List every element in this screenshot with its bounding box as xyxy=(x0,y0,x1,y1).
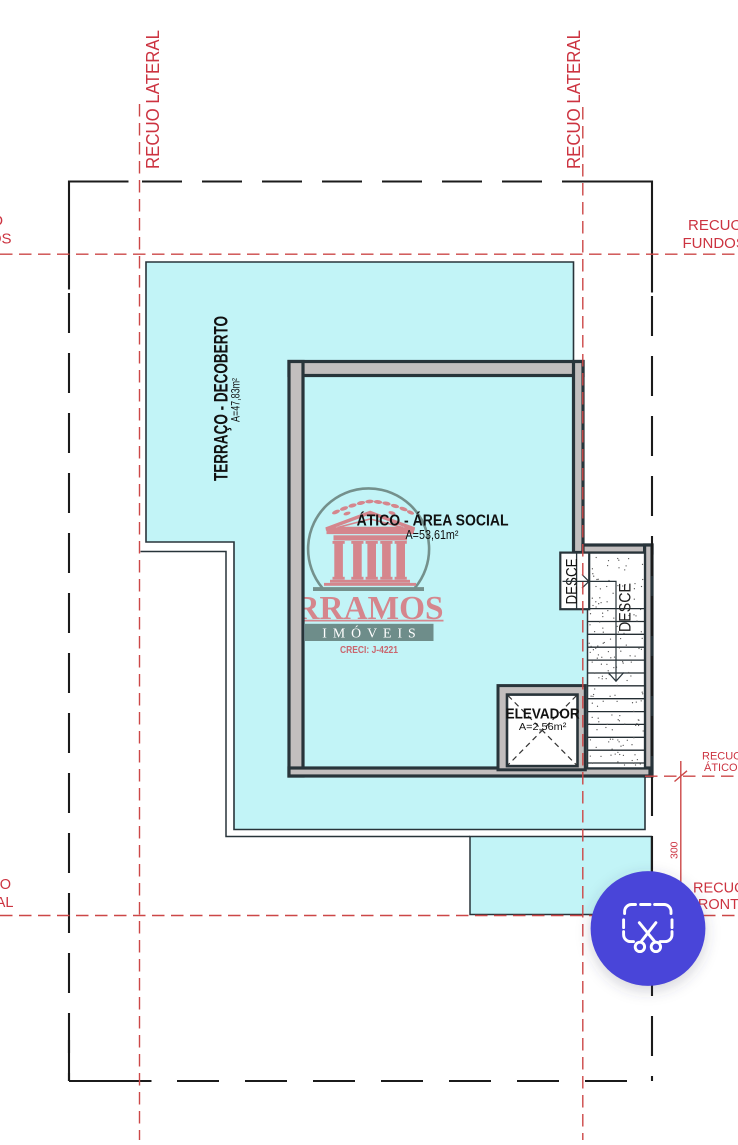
svg-text:RECUO: RECUO xyxy=(702,751,738,763)
svg-text:DESCE: DESCE xyxy=(616,583,635,632)
svg-text:FRONTAL: FRONTAL xyxy=(0,895,14,911)
svg-text:A=2,56m²: A=2,56m² xyxy=(519,721,567,733)
svg-text:CRECI: J-4221: CRECI: J-4221 xyxy=(340,644,398,656)
svg-text:A=47,83m²: A=47,83m² xyxy=(231,378,243,422)
svg-text:RECUO LATERAL: RECUO LATERAL xyxy=(143,30,163,169)
svg-text:RECUO LATERAL: RECUO LATERAL xyxy=(564,30,584,169)
svg-text:RECUO: RECUO xyxy=(693,880,738,896)
svg-text:TERRAÇO - DECOBERTO: TERRAÇO - DECOBERTO xyxy=(211,316,233,481)
svg-text:FUNDOS: FUNDOS xyxy=(683,235,738,252)
svg-text:RECUO: RECUO xyxy=(688,217,738,234)
svg-text:RECUO: RECUO xyxy=(0,877,11,893)
svg-text:A=53,61m²: A=53,61m² xyxy=(406,528,459,542)
svg-text:300: 300 xyxy=(669,841,681,859)
svg-text:FUNDOS: FUNDOS xyxy=(0,230,12,247)
svg-text:ÁTICO: ÁTICO xyxy=(704,761,738,774)
svg-text:RECUO: RECUO xyxy=(0,212,3,229)
svg-text:IMÓVEIS: IMÓVEIS xyxy=(322,624,422,640)
